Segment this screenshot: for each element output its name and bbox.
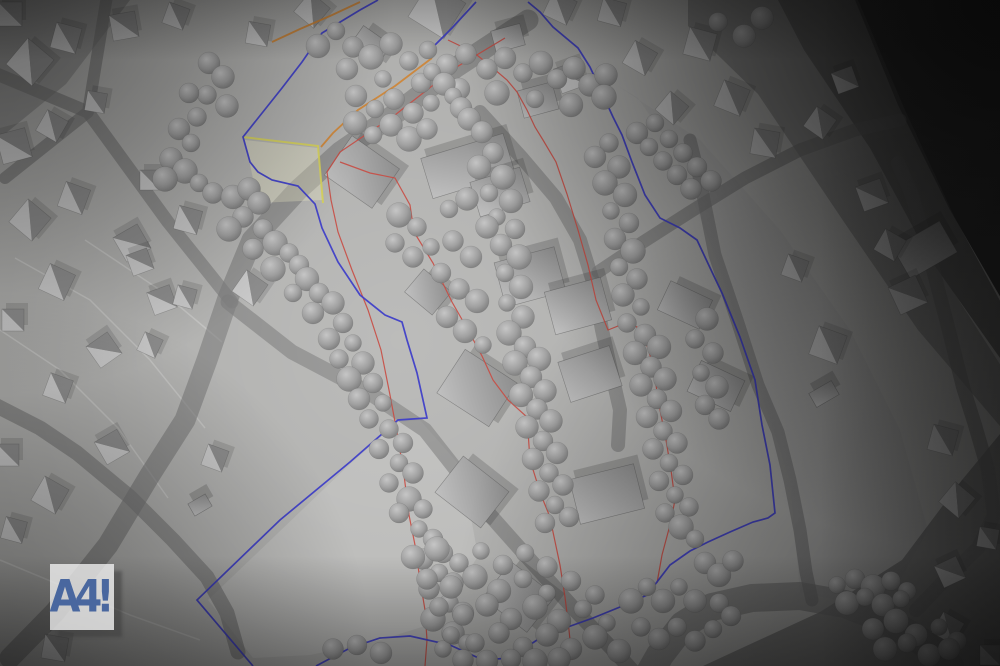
3d-city-model-render: A4! [0,0,1000,666]
a4-watermark-logo: A4! [50,564,114,630]
map-canvas [0,0,1000,666]
a4-watermark-text: A4! [49,575,114,620]
